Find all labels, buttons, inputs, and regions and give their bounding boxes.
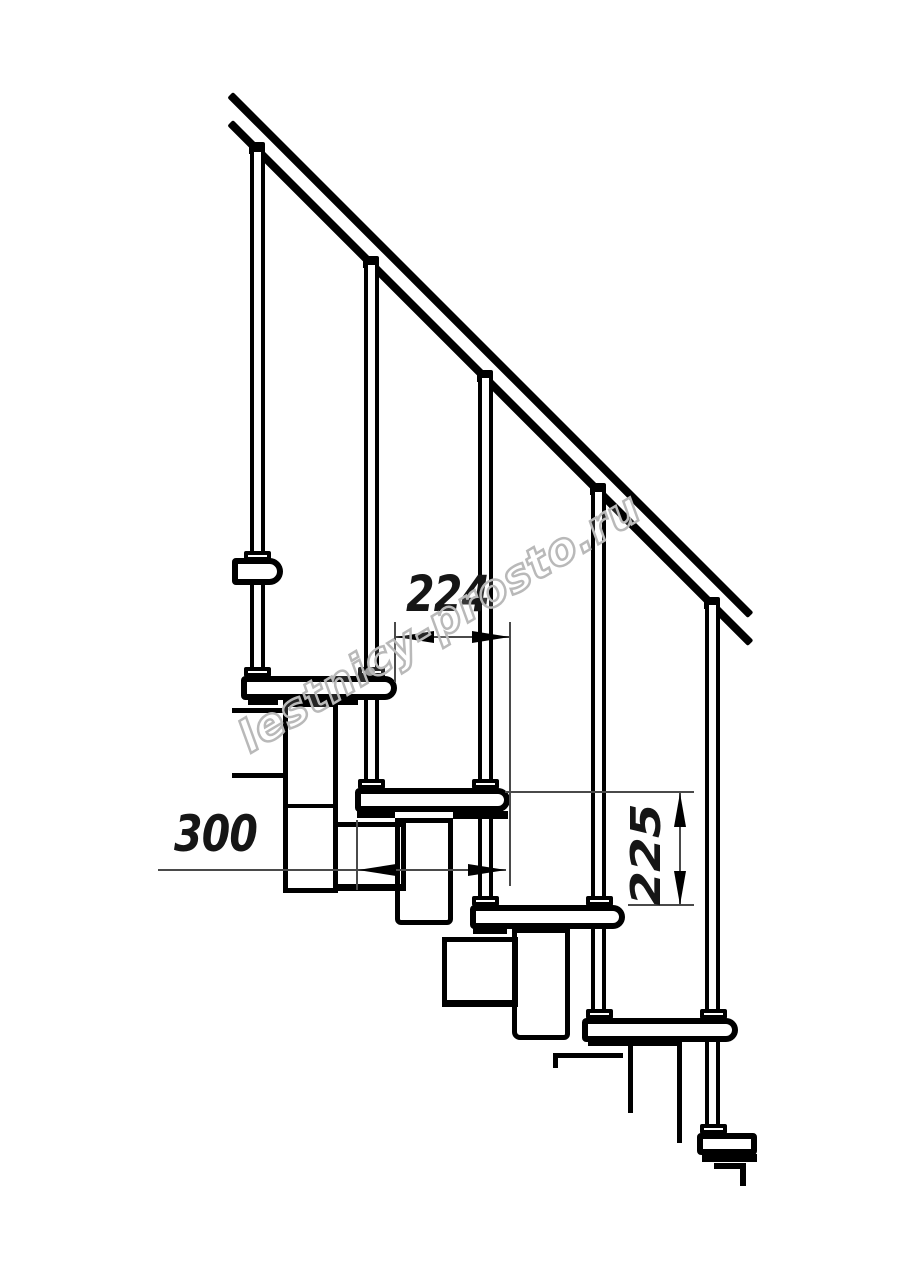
baluster-5-lower [705, 1039, 720, 1135]
baluster-3-lower [478, 809, 493, 907]
dim-224-arrow-right [472, 631, 510, 643]
cut-line-v2 [677, 1042, 682, 1143]
baluster-1-lower [250, 584, 265, 678]
dim-225-label: 225 [622, 795, 670, 915]
cut-line-h [558, 1053, 623, 1058]
dim-300-line [158, 869, 506, 871]
cut-line-v1 [628, 1045, 633, 1113]
tread-bracket [357, 811, 395, 818]
baluster-flange [700, 1009, 727, 1019]
cut-step-h [714, 1163, 740, 1169]
dim-shared-ext-right [509, 622, 511, 886]
cut-line-tick [553, 1053, 558, 1068]
tread-bracket [473, 928, 507, 934]
dim-225-ext-top [505, 791, 694, 793]
dim-225-arrow-up [674, 793, 686, 827]
baluster-2-upper [364, 265, 379, 678]
baluster-flange [700, 1124, 727, 1134]
tread-bracket [702, 1154, 757, 1162]
tread-2 [355, 788, 510, 812]
platform-arm-bottom [232, 773, 285, 778]
baluster-flange [472, 896, 499, 906]
tread-bracket [588, 1039, 680, 1046]
baluster-5-upper [705, 605, 720, 1020]
staircase-technical-drawing: 224 300 225 lestnicy-prosto.ru [0, 0, 914, 1280]
baluster-flange [472, 779, 499, 789]
baluster-flange [244, 667, 271, 677]
tread-bracket [453, 811, 508, 819]
tread-bottom-partial [697, 1133, 757, 1155]
cut-step-v [740, 1163, 746, 1186]
tread-upper-partial [232, 558, 283, 585]
dim-300-ext-left [356, 820, 358, 890]
spine-column-under-tread-3 [512, 928, 570, 1040]
spine-box-2 [442, 937, 518, 1007]
baluster-4-lower [591, 926, 606, 1020]
spine-column-divider [287, 804, 334, 808]
baluster-flange [244, 551, 271, 561]
baluster-flange [358, 779, 385, 789]
dim-300-arrow-right [468, 864, 506, 876]
tread-3 [470, 905, 625, 929]
baluster-2-lower [364, 697, 379, 790]
dim-225-arrow-down [674, 871, 686, 905]
dim-300-label: 300 [174, 805, 257, 863]
spine-column-under-tread-2 [395, 818, 453, 925]
baluster-1-upper [250, 152, 265, 560]
watermark-text: lestnicy-prosto.ru [229, 482, 650, 764]
baluster-flange [586, 1009, 613, 1019]
baluster-flange [586, 896, 613, 906]
dim-300-arrow-left [358, 864, 396, 876]
